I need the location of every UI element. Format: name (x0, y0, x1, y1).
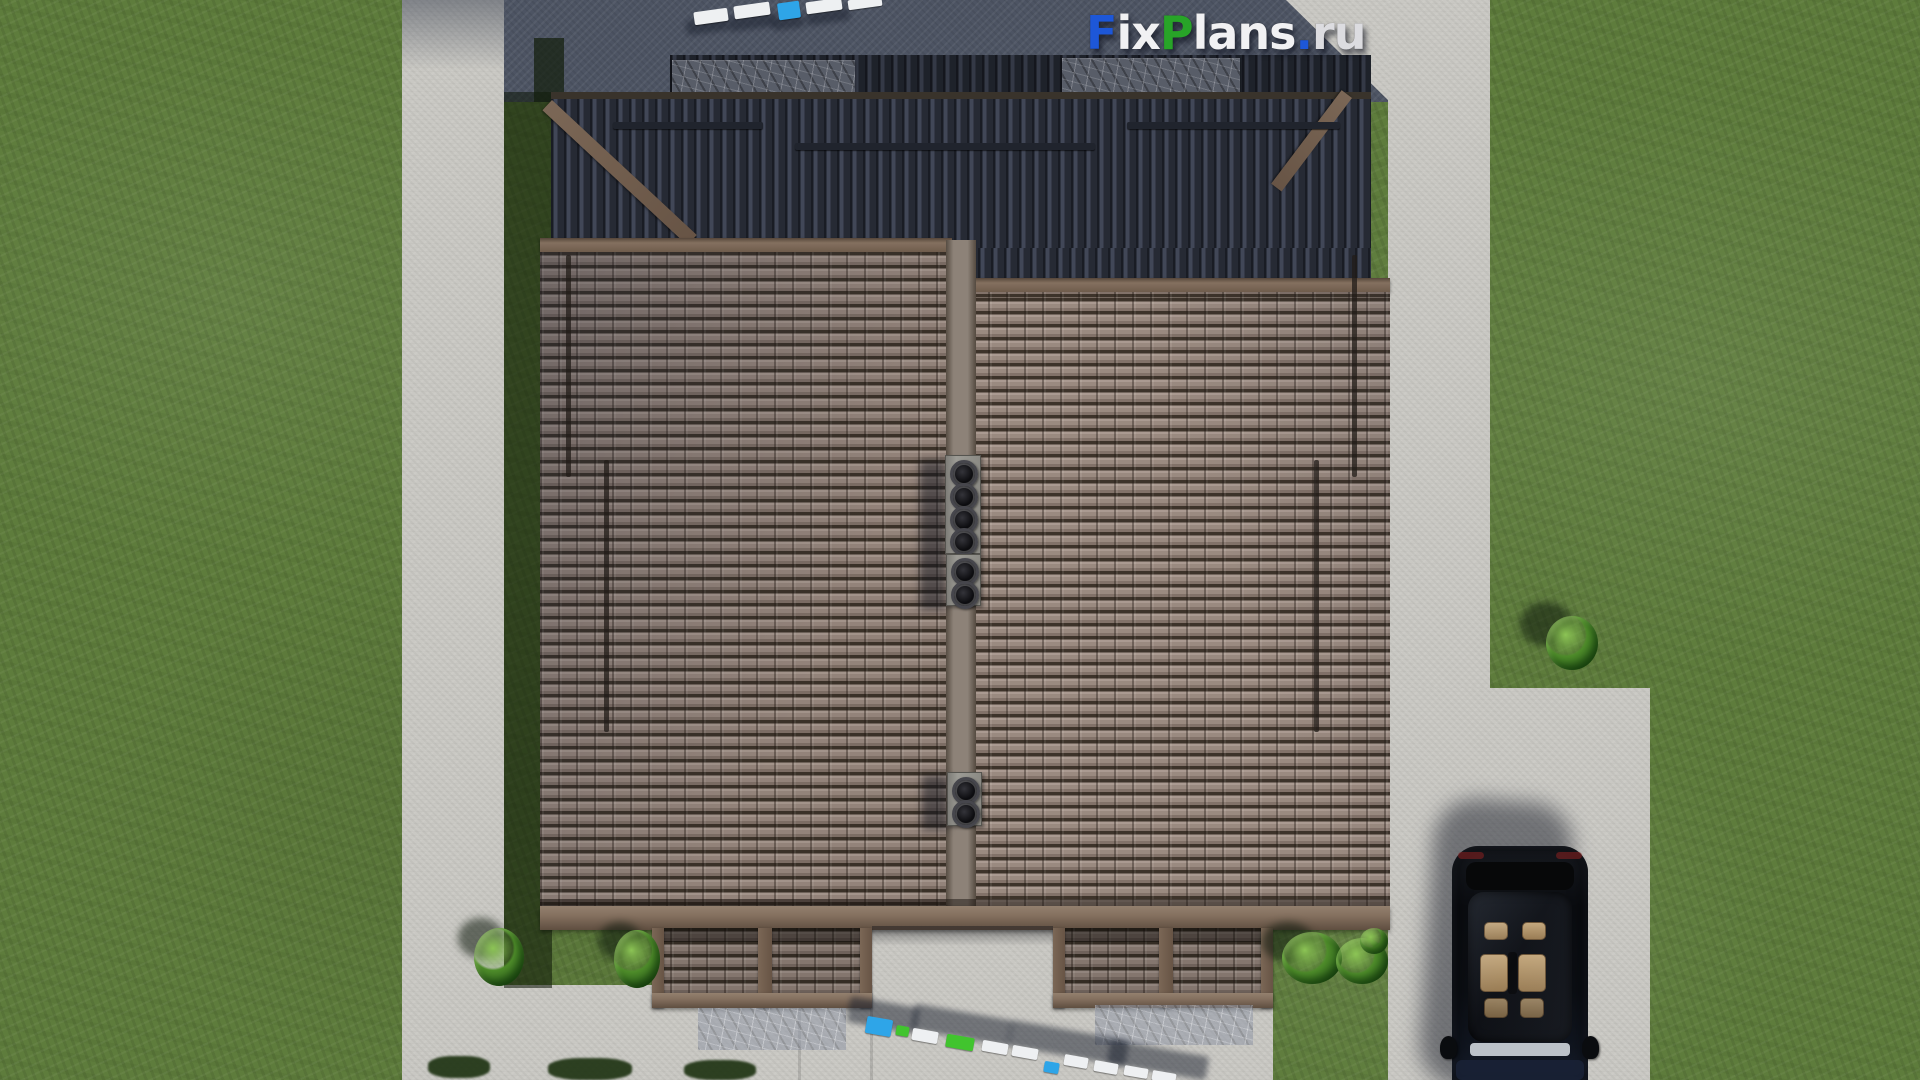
vent-pipe (950, 528, 978, 556)
render-viewport: FixPlans.ru (0, 0, 1920, 1080)
street-object (895, 1025, 910, 1037)
taillight-left (1458, 852, 1484, 859)
bush (1546, 616, 1598, 670)
logo-part: lans (1193, 6, 1296, 60)
snow-guard (795, 143, 1095, 150)
chimney-block-upper (945, 455, 981, 554)
logo-part: P (1160, 6, 1193, 60)
porch-fascia (652, 993, 872, 1008)
chimney-shadow (922, 775, 948, 830)
gutter-line (1352, 255, 1357, 477)
logo-part: ix (1116, 6, 1159, 60)
logo-part: ru (1312, 6, 1365, 60)
bush (474, 928, 524, 986)
logo-part: . (1296, 6, 1312, 60)
roof-dark-step-right (952, 248, 1371, 280)
glass-reflection (1468, 892, 1572, 1042)
bush (614, 930, 660, 988)
chimney-shadow (920, 460, 946, 610)
vent-pipe (952, 800, 980, 828)
car-glass-roof (1468, 892, 1572, 1042)
bush (1360, 928, 1388, 954)
car-mirror-right (1582, 1036, 1599, 1059)
under-eave-shadow-center (872, 926, 1053, 946)
stone-mat-left (698, 1008, 846, 1050)
path-left-top-shade (402, 0, 504, 70)
street-object (1043, 1061, 1060, 1074)
car-mirror-left (1440, 1036, 1457, 1059)
chimney-block-mid (946, 554, 981, 606)
logo-part: F (1086, 6, 1116, 60)
street-object (777, 1, 801, 21)
hood-sheen (1456, 1060, 1584, 1080)
rear-window (1466, 862, 1574, 890)
snow-guard (613, 122, 763, 129)
windshield-glare (1470, 1043, 1570, 1056)
porch-right (1053, 928, 1273, 1008)
bush (1282, 932, 1342, 984)
roof-shade-overlay (540, 252, 952, 920)
car-body (1452, 846, 1588, 1080)
back-eave-line (551, 92, 1371, 99)
gutter-line (566, 255, 571, 477)
ridge-cap-right (952, 278, 1390, 292)
hedge-dark (428, 1056, 490, 1078)
watermark-logo: FixPlans.ru (1086, 10, 1365, 56)
ridge-cap-left (540, 238, 952, 252)
roof-shade-overlay-right (952, 292, 1390, 920)
vent-pipe (951, 581, 979, 609)
hedge-dark (684, 1060, 756, 1080)
path-left (402, 0, 504, 988)
hedge-dark (548, 1058, 632, 1080)
path-right (1388, 0, 1490, 692)
gutter-line (604, 460, 609, 732)
porch-left (652, 928, 872, 1008)
gutter-line (1314, 460, 1319, 732)
snow-guard (1127, 122, 1340, 129)
taillight-right (1556, 852, 1582, 859)
chimney-block-lower (947, 772, 982, 826)
